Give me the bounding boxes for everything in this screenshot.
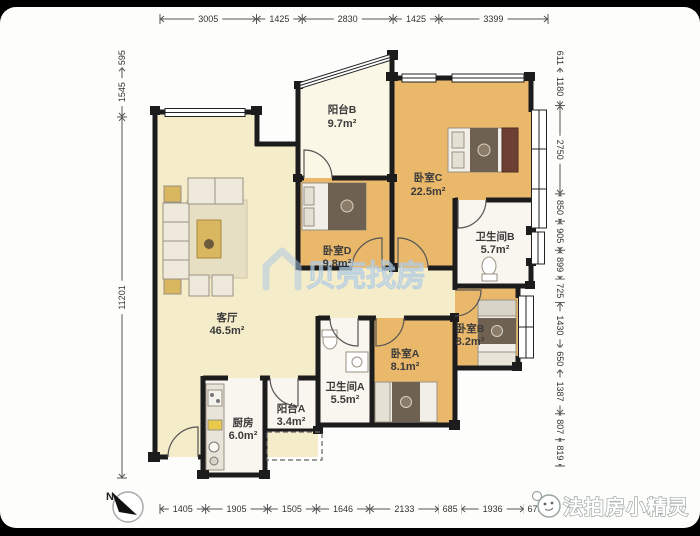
dim-label-group: 725 — [554, 280, 566, 303]
dim-label-group: 685 — [439, 503, 462, 515]
logo-ghost-icon — [538, 495, 560, 517]
dim-label-group: 850 — [554, 196, 566, 219]
dim-label-group: 2830 — [334, 13, 362, 25]
room-label-balconyA: 阳台A — [277, 402, 306, 415]
dim-value-right-9: 1387 — [555, 381, 565, 401]
dim-value-right-3: 850 — [555, 200, 565, 215]
room-label-bedC: 卧室C — [414, 171, 443, 184]
dim-label-group: 1405 — [169, 503, 197, 515]
room-area-bedC: 22.5m² — [411, 186, 446, 198]
dim-value-bottom-0: 1405 — [173, 504, 193, 514]
bedroom-d-bed — [302, 183, 366, 230]
bedroom-a-bed — [375, 382, 437, 422]
dim-value-right-2: 2750 — [555, 140, 565, 160]
dim-value-bottom-3: 1646 — [333, 504, 353, 514]
dim-label-group: 899 — [554, 253, 566, 276]
dim-value-right-10: 807 — [555, 419, 565, 434]
dim-value-right-4: 905 — [555, 228, 565, 243]
room-label-balconyB: 阳台B — [328, 103, 357, 116]
room-label-living: 客厅 — [216, 311, 238, 324]
dim-value-left-1: 1545 — [117, 82, 127, 102]
dim-label-group: 611 — [554, 47, 566, 70]
dim-value-right-6: 725 — [555, 283, 565, 298]
room-area-bathA: 5.5m² — [331, 394, 360, 406]
dim-value-right-1: 1180 — [555, 77, 565, 96]
room-label-bedD: 卧室D — [323, 244, 352, 257]
room-area-bedA: 8.1m² — [391, 361, 420, 373]
dim-label-group: 2133 — [390, 503, 418, 515]
dim-value-bottom-4: 2133 — [394, 504, 414, 514]
bathroom-b-toilet — [482, 257, 497, 281]
dim-label-group: 1425 — [402, 13, 430, 25]
dim-value-left-2: 11201 — [117, 285, 127, 309]
room-area-bedD: 9.8m² — [323, 258, 352, 270]
room-area-bathB: 5.7m² — [481, 244, 510, 256]
dim-value-right-5: 899 — [555, 257, 565, 272]
dim-label-group: 1425 — [265, 13, 293, 25]
dim-label-group: 3005 — [194, 13, 222, 25]
room-label-kitchen: 厨房 — [233, 416, 254, 429]
dim-label-group: 595 — [116, 46, 128, 69]
dim-value-top-0: 3005 — [198, 14, 218, 24]
kitchen-counter — [206, 384, 224, 470]
dim-value-right-11: 819 — [555, 445, 565, 460]
ghost-eye-left — [544, 503, 547, 506]
dim-value-right-7: 1430 — [555, 315, 565, 335]
dim-value-right-8: 650 — [555, 351, 565, 366]
living-room-sofa-set — [163, 178, 247, 296]
dim-value-top-4: 3399 — [483, 14, 503, 24]
room-area-living: 46.5m² — [210, 325, 245, 337]
dim-value-left-0: 595 — [117, 50, 127, 65]
room-area-bedB: 8.2m² — [456, 336, 485, 348]
dim-label-group: 1180 — [554, 73, 566, 101]
room-label-bedA: 卧室A — [391, 347, 420, 360]
brand-logo-text: 法拍房小精灵 — [563, 495, 689, 519]
dim-label-group: 807 — [554, 415, 566, 438]
dim-label-group: 819 — [554, 442, 566, 465]
dim-label-group: 650 — [554, 348, 566, 371]
dim-label-group: 1505 — [278, 503, 306, 515]
dim-label-group: 1545 — [116, 78, 128, 106]
dim-label-group: 1646 — [329, 503, 357, 515]
dim-value-top-2: 2830 — [338, 14, 358, 24]
brand-logo: 法拍房小精灵 — [533, 492, 690, 520]
room-label-bathA: 卫生间A — [325, 380, 364, 393]
dim-label-group: 1430 — [554, 311, 566, 339]
dim-label-group: 2750 — [554, 136, 566, 164]
dim-value-top-1: 1425 — [269, 14, 289, 24]
dim-label-group: 11201 — [116, 281, 128, 315]
room-area-kitchen: 6.0m² — [229, 430, 258, 442]
dim-value-right-0: 611 — [555, 51, 565, 65]
dim-label-group: 905 — [554, 224, 566, 247]
dim-value-bottom-6: 1936 — [483, 504, 503, 514]
dim-label-group: 1387 — [554, 377, 566, 405]
ghost-eye-right — [551, 502, 554, 505]
room-area-balconyA: 3.4m² — [277, 416, 306, 428]
room-area-balconyB: 9.7m² — [328, 118, 357, 130]
dim-value-bottom-2: 1505 — [282, 504, 302, 514]
dim-label-group: 1905 — [223, 503, 251, 515]
floorplan-screenshot: 贝壳找房 客厅 46.5m² 卧室C 22.5m² 卧室D 9.8m² 卧室A … — [0, 0, 700, 536]
dim-value-bottom-1: 1905 — [227, 504, 247, 514]
floorplan-drawing: 贝壳找房 客厅 46.5m² 卧室C 22.5m² 卧室D 9.8m² 卧室A … — [0, 0, 700, 536]
dim-value-bottom-5: 685 — [443, 504, 458, 514]
room-label-bathB: 卫生间B — [475, 230, 514, 243]
bedroom-c-bed — [448, 128, 518, 172]
dim-label-group: 1936 — [479, 503, 507, 515]
room-label-bedB: 卧室B — [456, 322, 485, 335]
compass: N — [106, 491, 143, 522]
dim-value-top-3: 1425 — [406, 14, 426, 24]
dim-label-group: 3399 — [479, 13, 507, 25]
